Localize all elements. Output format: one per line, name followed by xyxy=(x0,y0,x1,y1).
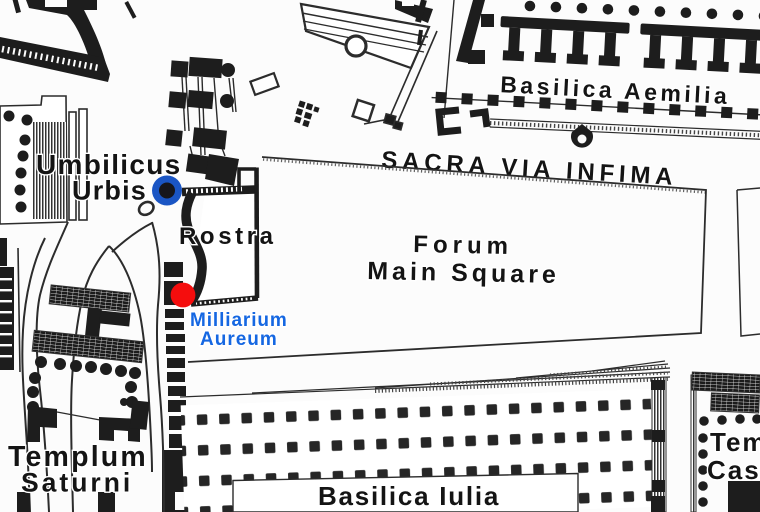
svg-text:Milliarium: Milliarium xyxy=(190,310,288,331)
svg-text:Forum: Forum xyxy=(413,231,513,260)
svg-text:Templum: Templum xyxy=(710,427,760,457)
svg-text:Urbis: Urbis xyxy=(72,176,147,206)
svg-text:Rostra: Rostra xyxy=(179,223,277,250)
svg-text:Aureum: Aureum xyxy=(200,329,278,350)
svg-text:Main Square: Main Square xyxy=(367,257,560,289)
svg-text:Basilica Iulia: Basilica Iulia xyxy=(318,481,500,511)
svg-text:Castoris: Castoris xyxy=(707,455,760,485)
svg-text:Saturni: Saturni xyxy=(21,468,133,498)
